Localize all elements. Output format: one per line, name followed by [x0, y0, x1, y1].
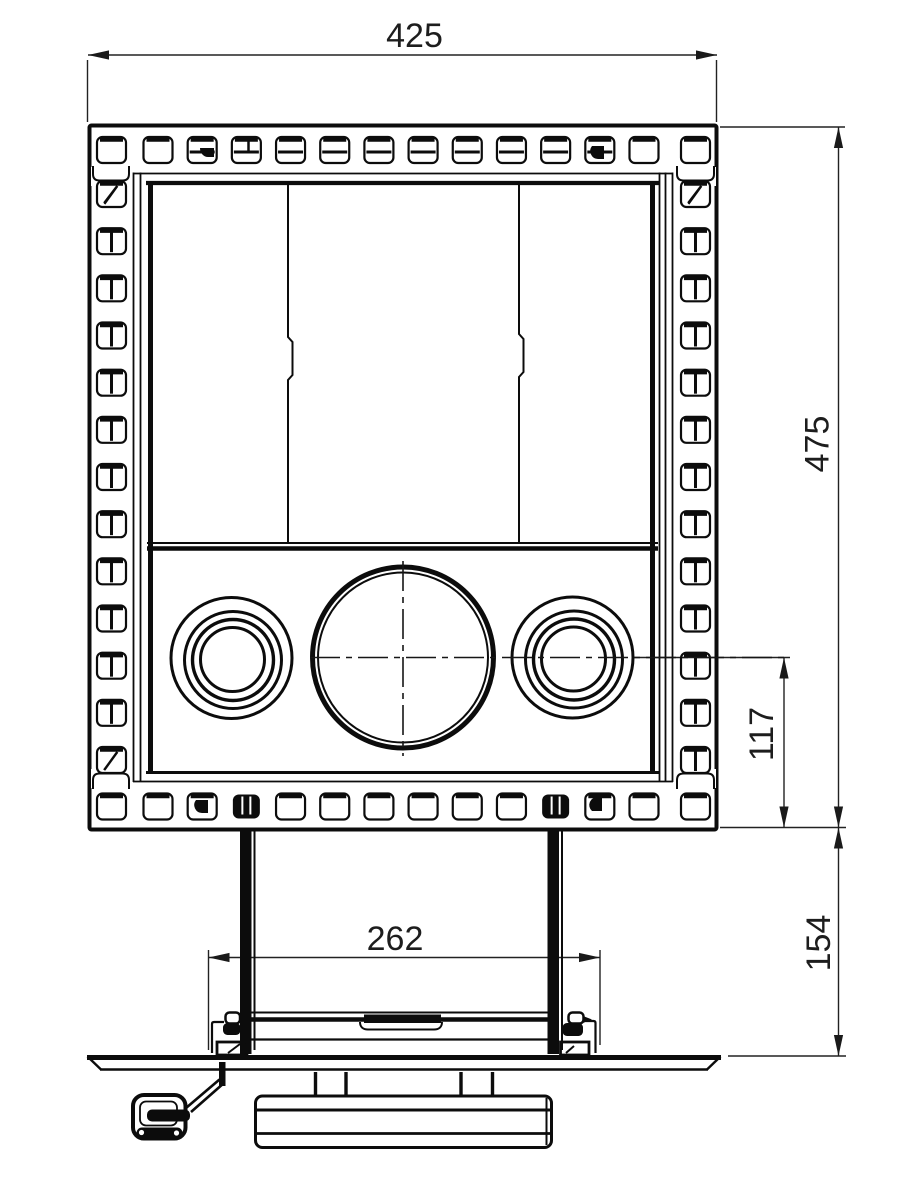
svg-text:425: 425	[386, 17, 443, 55]
svg-text:154: 154	[800, 915, 838, 972]
svg-text:117: 117	[743, 707, 781, 761]
svg-text:475: 475	[799, 416, 837, 473]
svg-text:262: 262	[367, 920, 424, 958]
